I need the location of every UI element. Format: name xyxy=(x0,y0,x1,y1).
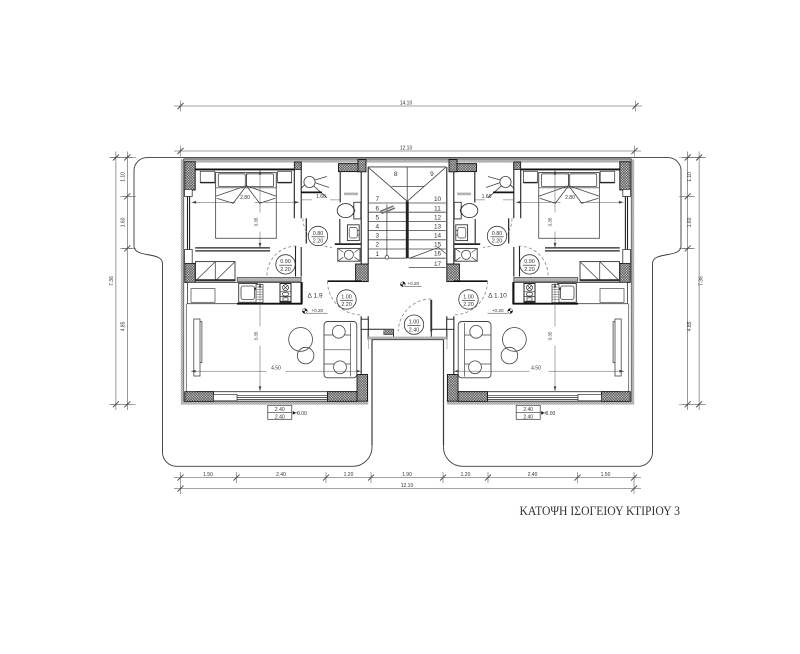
svg-text:2.80: 2.80 xyxy=(565,195,575,201)
svg-text:Δ 1.10: Δ 1.10 xyxy=(488,292,507,299)
svg-text:1.60: 1.60 xyxy=(316,194,326,200)
svg-text:7.36: 7.36 xyxy=(698,276,704,286)
svg-text:1.90: 1.90 xyxy=(402,472,412,478)
svg-text:11: 11 xyxy=(434,205,441,212)
svg-text:14: 14 xyxy=(434,232,442,239)
svg-text:2.40: 2.40 xyxy=(276,472,286,478)
svg-text:ΚΑΤΟΨΗ ΙΣΟΓΕΙΟΥ ΚΤΙΡΙΟΥ 3: ΚΑΤΟΨΗ ΙΣΟΓΕΙΟΥ ΚΤΙΡΙΟΥ 3 xyxy=(520,504,681,518)
svg-text:0.90: 0.90 xyxy=(280,259,291,265)
svg-text:2.40: 2.40 xyxy=(275,414,285,420)
svg-text:6: 6 xyxy=(376,205,380,212)
svg-text:10: 10 xyxy=(434,196,442,203)
svg-text:4.85: 4.85 xyxy=(687,321,693,331)
svg-text:4.50: 4.50 xyxy=(531,365,541,371)
svg-text:1.10: 1.10 xyxy=(687,172,693,182)
svg-text:2: 2 xyxy=(376,241,380,248)
svg-text:2.40: 2.40 xyxy=(523,414,533,420)
svg-text:1.00: 1.00 xyxy=(463,294,474,300)
svg-text:2.20: 2.20 xyxy=(313,239,324,245)
svg-text:2.40: 2.40 xyxy=(275,407,285,413)
svg-text:4.85: 4.85 xyxy=(121,321,127,331)
svg-text:1.50: 1.50 xyxy=(601,472,611,478)
svg-text:0.00: 0.00 xyxy=(546,411,556,417)
svg-text:3.35: 3.35 xyxy=(254,331,259,340)
svg-text:0.80: 0.80 xyxy=(492,231,503,237)
svg-text:4.50: 4.50 xyxy=(271,365,281,371)
svg-text:1.20: 1.20 xyxy=(344,472,354,478)
svg-text:16: 16 xyxy=(434,250,442,257)
svg-text:3.35: 3.35 xyxy=(548,217,553,226)
svg-text:1.10: 1.10 xyxy=(121,172,127,182)
svg-text:1.60: 1.60 xyxy=(687,217,693,227)
svg-text:3: 3 xyxy=(376,232,380,239)
svg-text:5: 5 xyxy=(376,214,380,221)
svg-text:0.80: 0.80 xyxy=(313,231,324,237)
svg-text:3.35: 3.35 xyxy=(254,217,259,226)
svg-text:2.80: 2.80 xyxy=(240,195,250,201)
svg-text:0.90: 0.90 xyxy=(524,259,535,265)
svg-text:1: 1 xyxy=(376,251,380,258)
svg-text:2.40: 2.40 xyxy=(409,327,420,333)
svg-text:+0.20: +0.20 xyxy=(492,308,504,313)
svg-text:17: 17 xyxy=(434,261,442,268)
svg-text:2.20: 2.20 xyxy=(341,302,352,308)
svg-text:8: 8 xyxy=(394,171,398,178)
svg-text:+0.20: +0.20 xyxy=(407,281,419,286)
svg-text:9: 9 xyxy=(430,171,434,178)
svg-text:1.60: 1.60 xyxy=(121,217,127,227)
svg-text:13: 13 xyxy=(434,223,442,230)
svg-text:4: 4 xyxy=(376,223,380,230)
svg-text:7: 7 xyxy=(376,196,380,203)
svg-text:2.20: 2.20 xyxy=(463,302,474,308)
svg-text:12.10: 12.10 xyxy=(400,145,413,151)
svg-text:15: 15 xyxy=(434,241,442,248)
svg-text:1.20: 1.20 xyxy=(461,472,471,478)
svg-text:3.35: 3.35 xyxy=(548,331,553,340)
svg-text:14.10: 14.10 xyxy=(400,100,413,106)
svg-text:1.60: 1.60 xyxy=(482,194,492,200)
svg-text:1.00: 1.00 xyxy=(409,320,420,326)
svg-text:12: 12 xyxy=(434,214,442,221)
svg-text:0.00: 0.00 xyxy=(297,411,307,417)
svg-text:1.00: 1.00 xyxy=(341,294,352,300)
svg-text:1.50: 1.50 xyxy=(203,472,213,478)
svg-text:2.20: 2.20 xyxy=(280,267,291,273)
svg-text:2.20: 2.20 xyxy=(524,267,535,273)
svg-text:2.20: 2.20 xyxy=(492,239,503,245)
svg-text:12.10: 12.10 xyxy=(401,483,414,489)
svg-text:2.40: 2.40 xyxy=(528,472,538,478)
svg-text:+0.20: +0.20 xyxy=(311,308,323,313)
svg-text:7.36: 7.36 xyxy=(109,276,115,286)
svg-text:Δ 1.9: Δ 1.9 xyxy=(307,292,322,299)
svg-text:2.40: 2.40 xyxy=(523,407,533,413)
